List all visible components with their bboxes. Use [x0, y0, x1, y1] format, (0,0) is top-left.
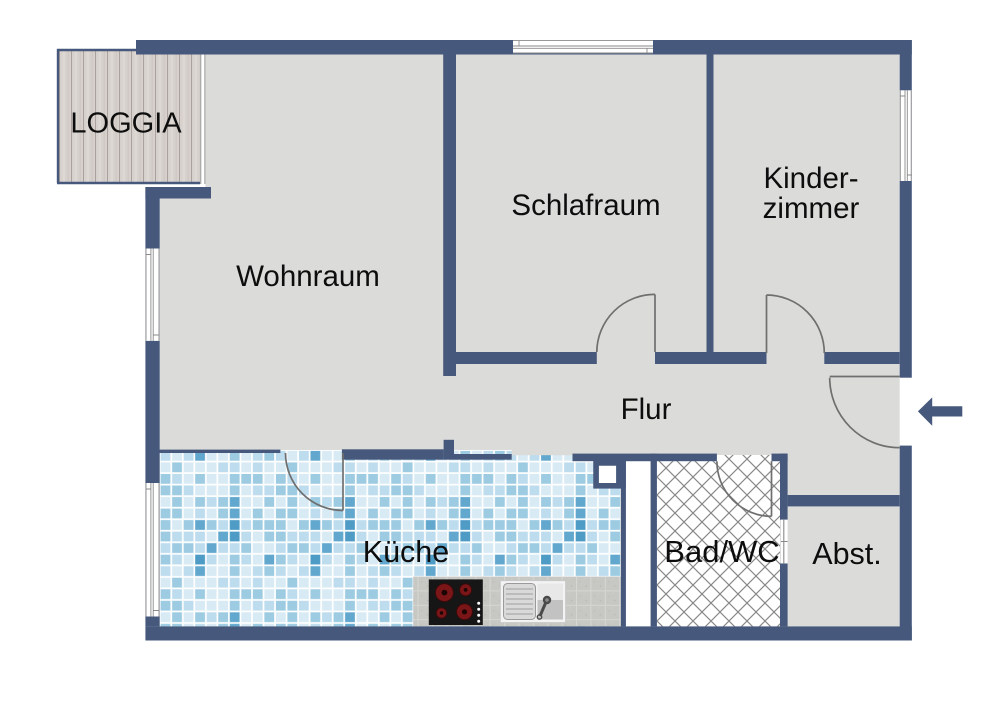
svg-text:Kinder-: Kinder- — [763, 162, 858, 195]
svg-text:Bad/WC: Bad/WC — [664, 534, 779, 569]
svg-text:Abst.: Abst. — [812, 537, 882, 571]
svg-text:Wohnraum: Wohnraum — [236, 260, 380, 293]
svg-text:Flur: Flur — [621, 393, 672, 426]
svg-text:Küche: Küche — [363, 535, 449, 569]
svg-text:zimmer: zimmer — [763, 192, 860, 225]
svg-text:LOGGIA: LOGGIA — [70, 108, 182, 140]
svg-text:Schlafraum: Schlafraum — [511, 189, 660, 222]
